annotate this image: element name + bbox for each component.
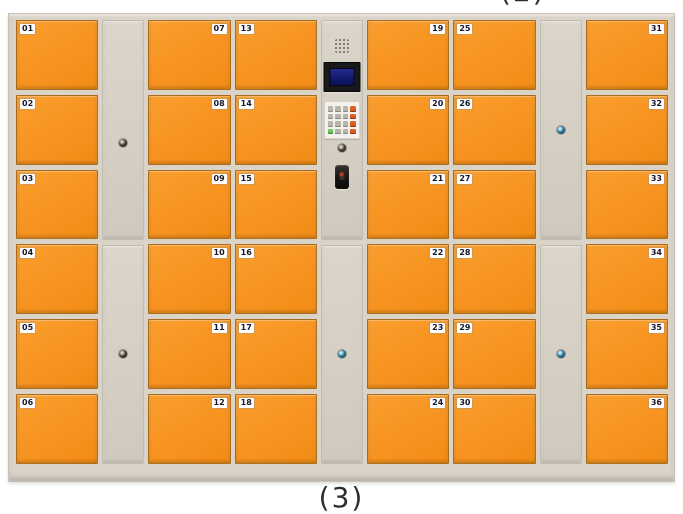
keypad-key-gray[interactable] (335, 106, 341, 112)
keypad-key-gray[interactable] (328, 121, 334, 127)
control-column (321, 20, 363, 464)
locker-door-25[interactable]: 25 (453, 20, 535, 90)
service-panel-door-bottom[interactable] (102, 245, 144, 465)
locker-column-25-30: 252627282930 (453, 20, 535, 464)
locker-number-label: 32 (649, 99, 664, 109)
caption-bottom: (3) (0, 481, 683, 514)
keypad-key-gray[interactable] (328, 106, 334, 112)
locker-door-18[interactable]: 18 (235, 394, 317, 464)
locker-number-label: 25 (457, 24, 472, 34)
locker-column-19-24: 192021222324 (367, 20, 449, 464)
locker-number-label: 05 (20, 323, 35, 333)
keypad-key-gray[interactable] (343, 129, 349, 135)
locker-number-label: 02 (20, 99, 35, 109)
locker-door-08[interactable]: 08 (148, 95, 230, 165)
locker-number-label: 14 (239, 99, 254, 109)
locker-door-04[interactable]: 04 (16, 244, 98, 314)
service-panel-door-top[interactable] (102, 20, 144, 240)
locker-door-24[interactable]: 24 (367, 394, 449, 464)
locker-number-label: 06 (20, 398, 35, 408)
locker-column-01-06: 010203040506 (16, 20, 98, 464)
locker-number-label: 08 (212, 99, 227, 109)
keypad-key-red[interactable] (350, 121, 356, 127)
locker-number-label: 09 (212, 174, 227, 184)
locker-number-label: 30 (457, 398, 472, 408)
locker-number-label: 01 (20, 24, 35, 34)
keypad-key-red[interactable] (350, 106, 356, 112)
keyhole-icon[interactable] (338, 144, 346, 152)
locker-door-02[interactable]: 02 (16, 95, 98, 165)
caption-top: (2) (500, 0, 546, 8)
keypad-key-gray[interactable] (335, 114, 341, 120)
keypad-key-green[interactable] (328, 129, 334, 135)
keypad-key-gray[interactable] (343, 114, 349, 120)
locker-number-label: 07 (212, 24, 227, 34)
locker-number-label: 03 (20, 174, 35, 184)
keyhole-icon[interactable] (119, 350, 127, 358)
locker-door-14[interactable]: 14 (235, 95, 317, 165)
locker-door-33[interactable]: 33 (586, 170, 668, 240)
locker-number-label: 31 (649, 24, 664, 34)
locker-door-36[interactable]: 36 (586, 394, 668, 464)
locker-number-label: 29 (457, 323, 472, 333)
keypad-key-gray[interactable] (335, 121, 341, 127)
locker-door-01[interactable]: 01 (16, 20, 98, 90)
speaker-icon (333, 37, 351, 55)
locker-door-09[interactable]: 09 (148, 170, 230, 240)
control-lower-door[interactable] (321, 245, 363, 465)
locker-number-label: 20 (430, 99, 445, 109)
keypad[interactable] (324, 101, 360, 139)
service-panel-right (540, 20, 582, 464)
keyhole-icon[interactable] (338, 350, 346, 358)
locker-number-label: 34 (649, 248, 664, 258)
locker-number-label: 19 (430, 24, 445, 34)
locker-door-11[interactable]: 11 (148, 319, 230, 389)
locker-door-23[interactable]: 23 (367, 319, 449, 389)
locker-door-12[interactable]: 12 (148, 394, 230, 464)
locker-number-label: 24 (430, 398, 445, 408)
service-panel-door-bottom[interactable] (540, 245, 582, 465)
service-panel-left (102, 20, 144, 464)
reader-light-icon (339, 171, 344, 180)
locker-number-label: 13 (239, 24, 254, 34)
keyhole-icon[interactable] (119, 139, 127, 147)
locker-door-19[interactable]: 19 (367, 20, 449, 90)
locker-number-label: 28 (457, 248, 472, 258)
service-panel-door-top[interactable] (540, 20, 582, 240)
locker-column-31-36: 313233343536 (586, 20, 668, 464)
locker-number-label: 21 (430, 174, 445, 184)
locker-door-29[interactable]: 29 (453, 319, 535, 389)
locker-door-31[interactable]: 31 (586, 20, 668, 90)
locker-number-label: 36 (649, 398, 664, 408)
keypad-key-gray[interactable] (343, 106, 349, 112)
locker-door-30[interactable]: 30 (453, 394, 535, 464)
locker-number-label: 16 (239, 248, 254, 258)
locker-column-07-12: 070809101112 (148, 20, 230, 464)
locker-number-label: 35 (649, 323, 664, 333)
locker-number-label: 15 (239, 174, 254, 184)
locker-number-label: 26 (457, 99, 472, 109)
locker-door-21[interactable]: 21 (367, 170, 449, 240)
locker-door-03[interactable]: 03 (16, 170, 98, 240)
card-reader[interactable] (335, 165, 349, 189)
keypad-key-gray[interactable] (335, 129, 341, 135)
locker-number-label: 33 (649, 174, 664, 184)
locker-column-13-18: 131415161718 (235, 20, 317, 464)
locker-number-label: 10 (212, 248, 227, 258)
locker-cabinet: 010203040506 070809101112 131415161718 1… (8, 13, 675, 482)
keyhole-icon[interactable] (557, 126, 565, 134)
locker-door-17[interactable]: 17 (235, 319, 317, 389)
keypad-key-red[interactable] (350, 129, 356, 135)
locker-door-10[interactable]: 10 (148, 244, 230, 314)
locker-door-13[interactable]: 13 (235, 20, 317, 90)
locker-door-28[interactable]: 28 (453, 244, 535, 314)
locker-door-05[interactable]: 05 (16, 319, 98, 389)
locker-number-label: 18 (239, 398, 254, 408)
locker-door-35[interactable]: 35 (586, 319, 668, 389)
keyhole-icon[interactable] (557, 350, 565, 358)
locker-door-32[interactable]: 32 (586, 95, 668, 165)
keypad-key-red[interactable] (350, 114, 356, 120)
locker-door-15[interactable]: 15 (235, 170, 317, 240)
locker-door-27[interactable]: 27 (453, 170, 535, 240)
locker-door-06[interactable]: 06 (16, 394, 98, 464)
keypad-key-gray[interactable] (343, 121, 349, 127)
locker-number-label: 11 (212, 323, 227, 333)
control-panel (321, 20, 363, 240)
locker-number-label: 27 (457, 174, 472, 184)
keypad-key-gray[interactable] (328, 114, 334, 120)
locker-door-20[interactable]: 20 (367, 95, 449, 165)
locker-door-34[interactable]: 34 (586, 244, 668, 314)
locker-number-label: 12 (212, 398, 227, 408)
screen-glass (329, 68, 354, 86)
locker-number-label: 17 (239, 323, 254, 333)
locker-door-07[interactable]: 07 (148, 20, 230, 90)
locker-number-label: 22 (430, 248, 445, 258)
locker-door-26[interactable]: 26 (453, 95, 535, 165)
locker-door-22[interactable]: 22 (367, 244, 449, 314)
lcd-screen (323, 62, 360, 92)
locker-door-16[interactable]: 16 (235, 244, 317, 314)
locker-number-label: 23 (430, 323, 445, 333)
locker-number-label: 04 (20, 248, 35, 258)
